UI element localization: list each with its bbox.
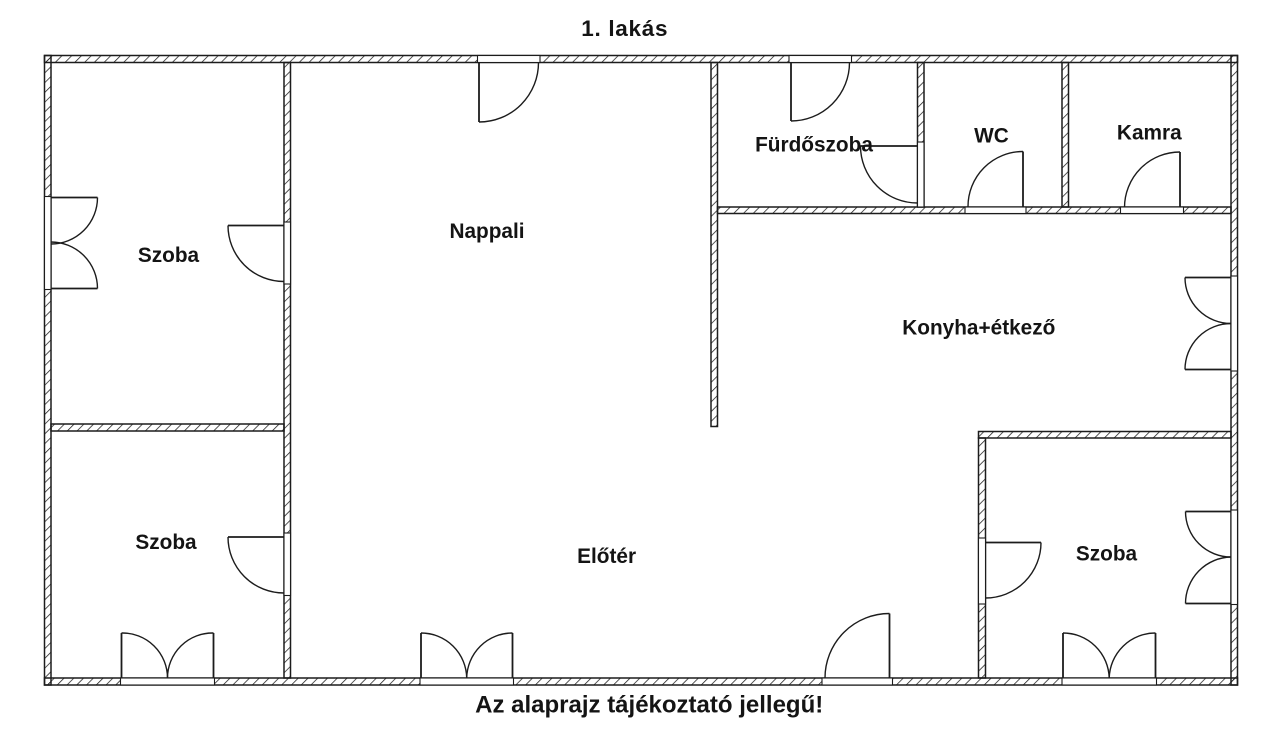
svg-text:Kamra: Kamra <box>1117 122 1182 145</box>
svg-text:Szoba: Szoba <box>135 531 197 554</box>
svg-text:Fürdőszoba: Fürdőszoba <box>755 133 873 156</box>
svg-text:Konyha+étkező: Konyha+étkező <box>902 317 1055 340</box>
svg-text:Előtér: Előtér <box>577 545 636 568</box>
svg-text:Szoba: Szoba <box>1076 543 1138 566</box>
svg-text:1. lakás: 1. lakás <box>581 16 668 41</box>
svg-text:Szoba: Szoba <box>138 244 200 267</box>
svg-text:Az alaprajz tájékoztató jelleg: Az alaprajz tájékoztató jellegű! <box>475 692 823 719</box>
svg-text:Nappali: Nappali <box>449 220 524 243</box>
svg-text:WC: WC <box>974 124 1009 147</box>
